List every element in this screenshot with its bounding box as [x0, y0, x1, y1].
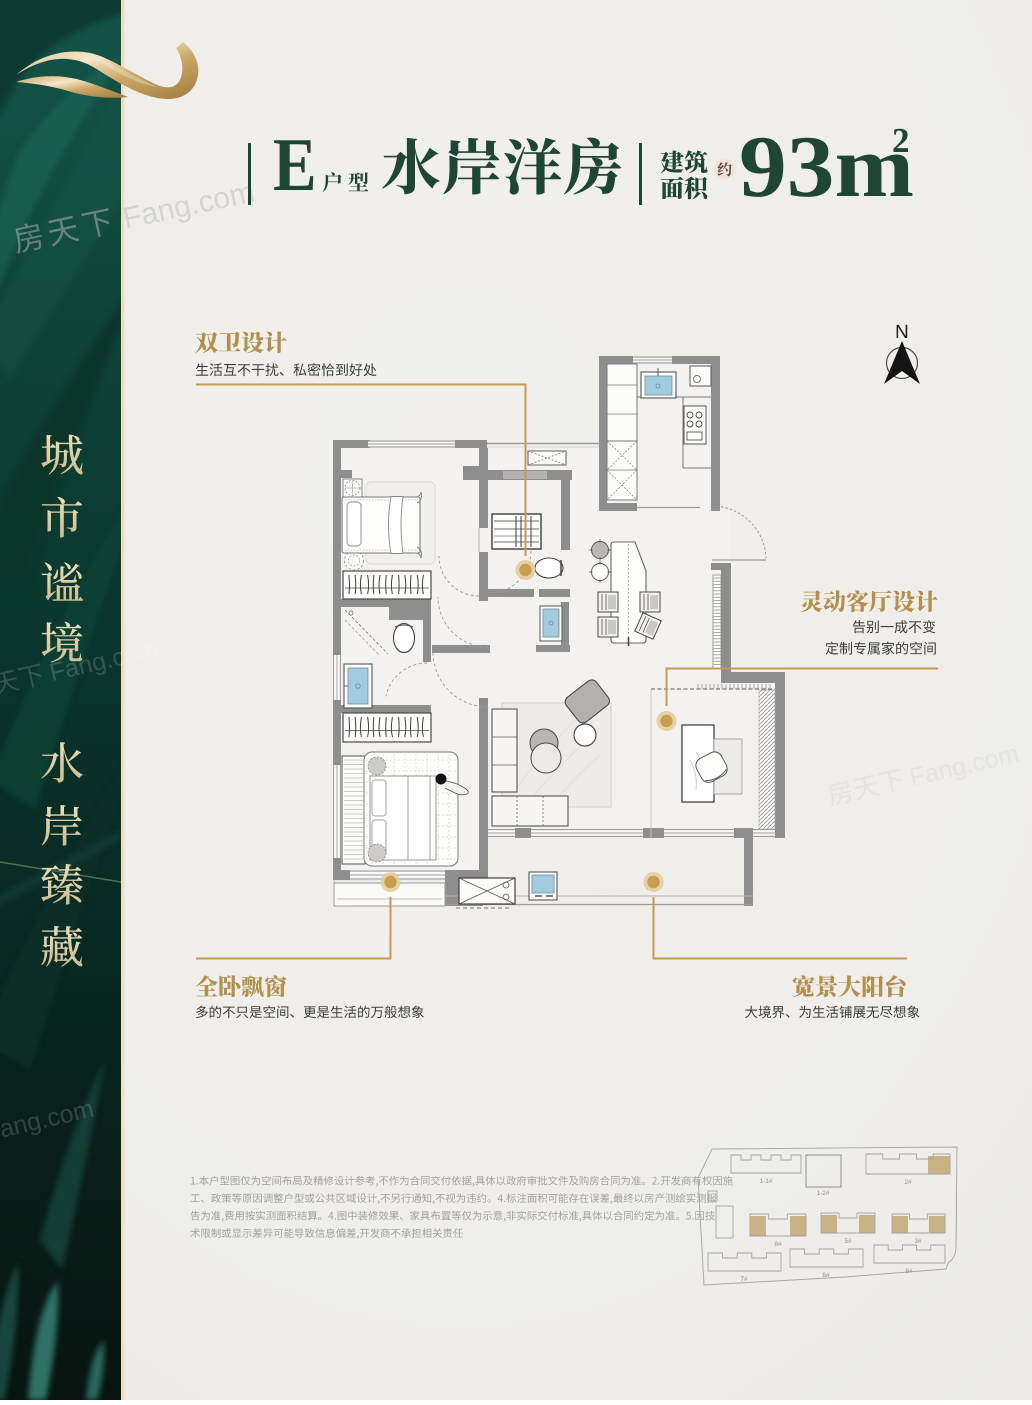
svg-text:9#: 9# [905, 1268, 913, 1275]
svg-text:1-2#: 1-2# [816, 1190, 829, 1197]
svg-text:8#: 8# [822, 1272, 830, 1279]
svg-text:2#: 2# [904, 1179, 912, 1186]
svg-text:8#: 8# [774, 1241, 782, 1248]
svg-text:5#: 5# [844, 1238, 852, 1245]
svg-text:3#: 3# [914, 1238, 922, 1245]
svg-text:7#: 7# [740, 1276, 748, 1283]
svg-text:1-1#: 1-1# [759, 1178, 772, 1185]
